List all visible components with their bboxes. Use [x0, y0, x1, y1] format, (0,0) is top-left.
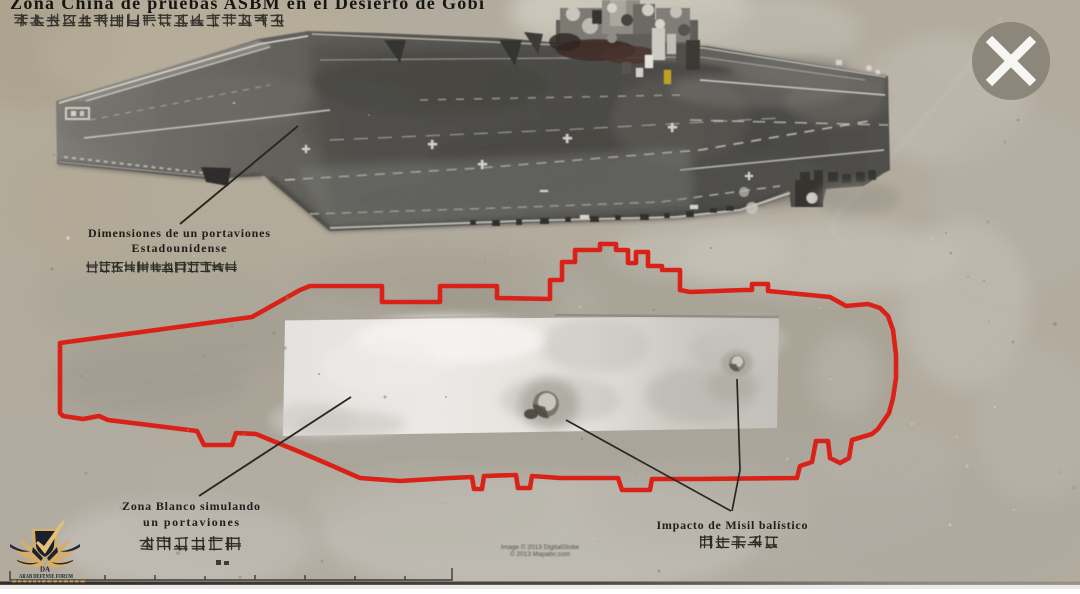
svg-text:ARAB DEFENSE FORUM: ARAB DEFENSE FORUM — [19, 574, 73, 580]
svg-text:DA: DA — [40, 566, 50, 574]
